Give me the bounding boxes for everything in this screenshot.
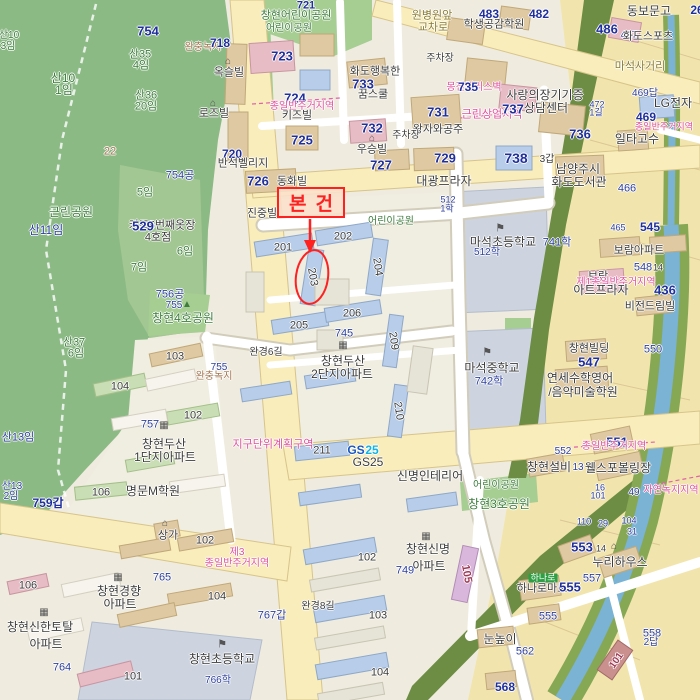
map-base xyxy=(0,0,700,700)
river-north xyxy=(671,15,672,225)
map-canvas[interactable]: 산103임754산354임산101임산3620임22근린공원산11임5임754공… xyxy=(0,0,700,700)
